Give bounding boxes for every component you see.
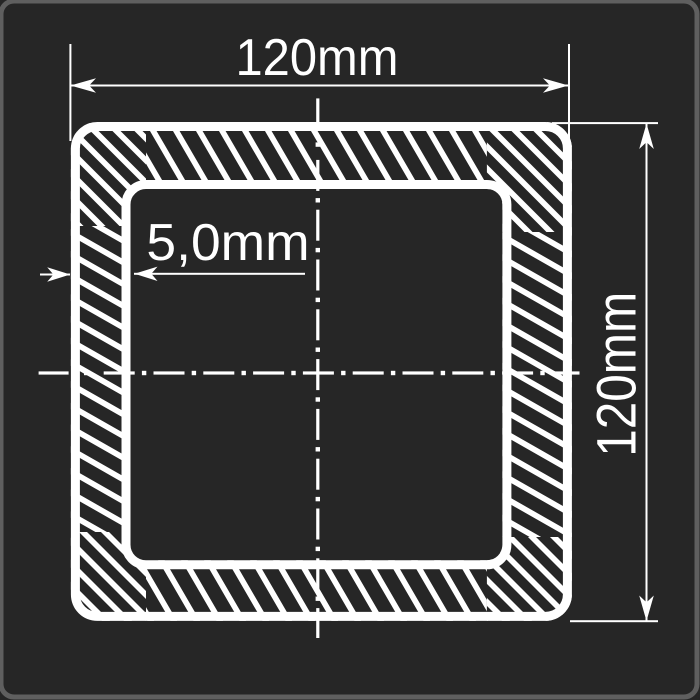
svg-text:120mm: 120mm (236, 28, 399, 86)
svg-text:120mm: 120mm (585, 292, 648, 457)
svg-text:5,0mm: 5,0mm (146, 213, 309, 271)
